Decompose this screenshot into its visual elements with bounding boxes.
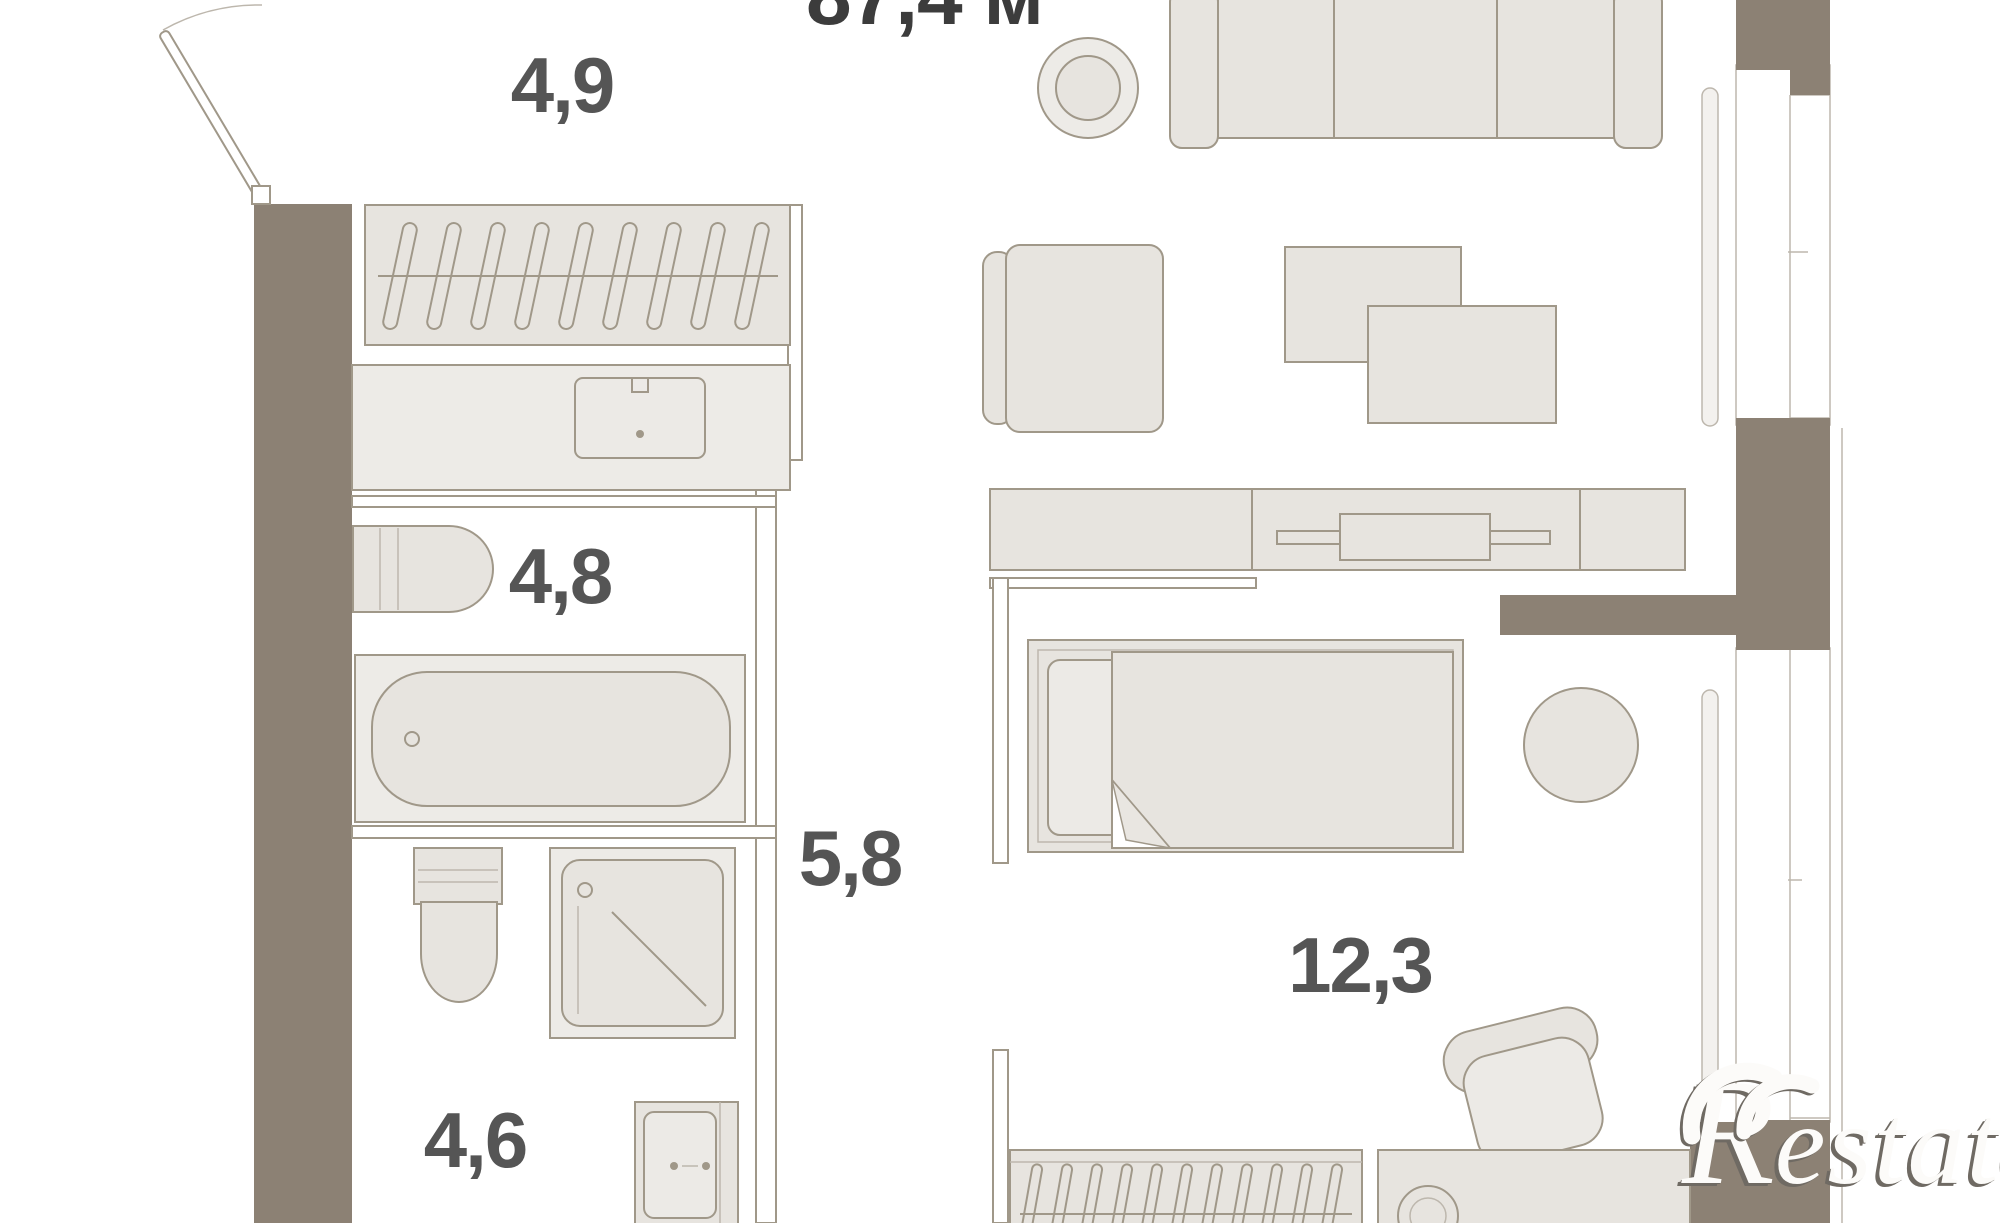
wardrobe-hangers-icon [365,205,790,345]
vanity-sink-icon [352,365,790,490]
floor-plan: 87,4 м 4,9 4,8 5,8 4,6 12,3 R estate [0,0,2000,1223]
washing-machine-icon [353,526,493,612]
desk-icon [1378,1150,1690,1223]
room-area-label-corridor: 5,8 [799,819,901,897]
toilet-icon [414,848,502,1002]
coffee-table-icon [1285,247,1556,423]
floor-plan-drawing [0,0,2000,1223]
radiator-icon [1702,88,1718,426]
room-area-label-bathroom: 4,8 [509,537,611,615]
room-area-label-hallway: 4,9 [511,46,613,124]
round-side-table-icon [1524,688,1638,802]
plant-icon [1038,38,1138,138]
tv-sideboard-icon [990,489,1685,570]
window-icon [1736,65,1830,425]
sofa-icon [1170,0,1662,148]
wardrobe-hangers-icon [1010,1150,1362,1223]
room-area-label-bedroom: 12,3 [1288,926,1432,1004]
bathtub-icon [355,655,745,822]
armchair-icon [983,245,1163,432]
entry-door-icon [159,5,270,204]
total-area-label: 87,4 м [806,0,1043,38]
watermark: R estate [1682,1056,2000,1223]
watermark-swoosh-icon [1682,1056,1832,1148]
bed-icon [1028,640,1463,852]
shower-cabin-icon [550,848,735,1038]
room-area-label-wc: 4,6 [424,1101,526,1179]
desk-chair-icon [1437,1001,1622,1173]
washbasin-icon [635,1102,738,1223]
